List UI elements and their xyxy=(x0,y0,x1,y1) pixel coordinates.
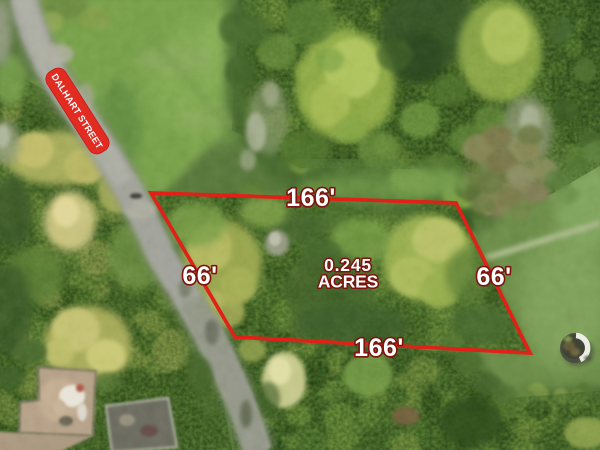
svg-text:ACRES: ACRES xyxy=(318,272,378,292)
svg-text:66': 66' xyxy=(182,262,217,290)
svg-text:166': 166' xyxy=(354,334,404,362)
svg-text:166': 166' xyxy=(286,184,336,212)
svg-text:66': 66' xyxy=(476,263,511,291)
